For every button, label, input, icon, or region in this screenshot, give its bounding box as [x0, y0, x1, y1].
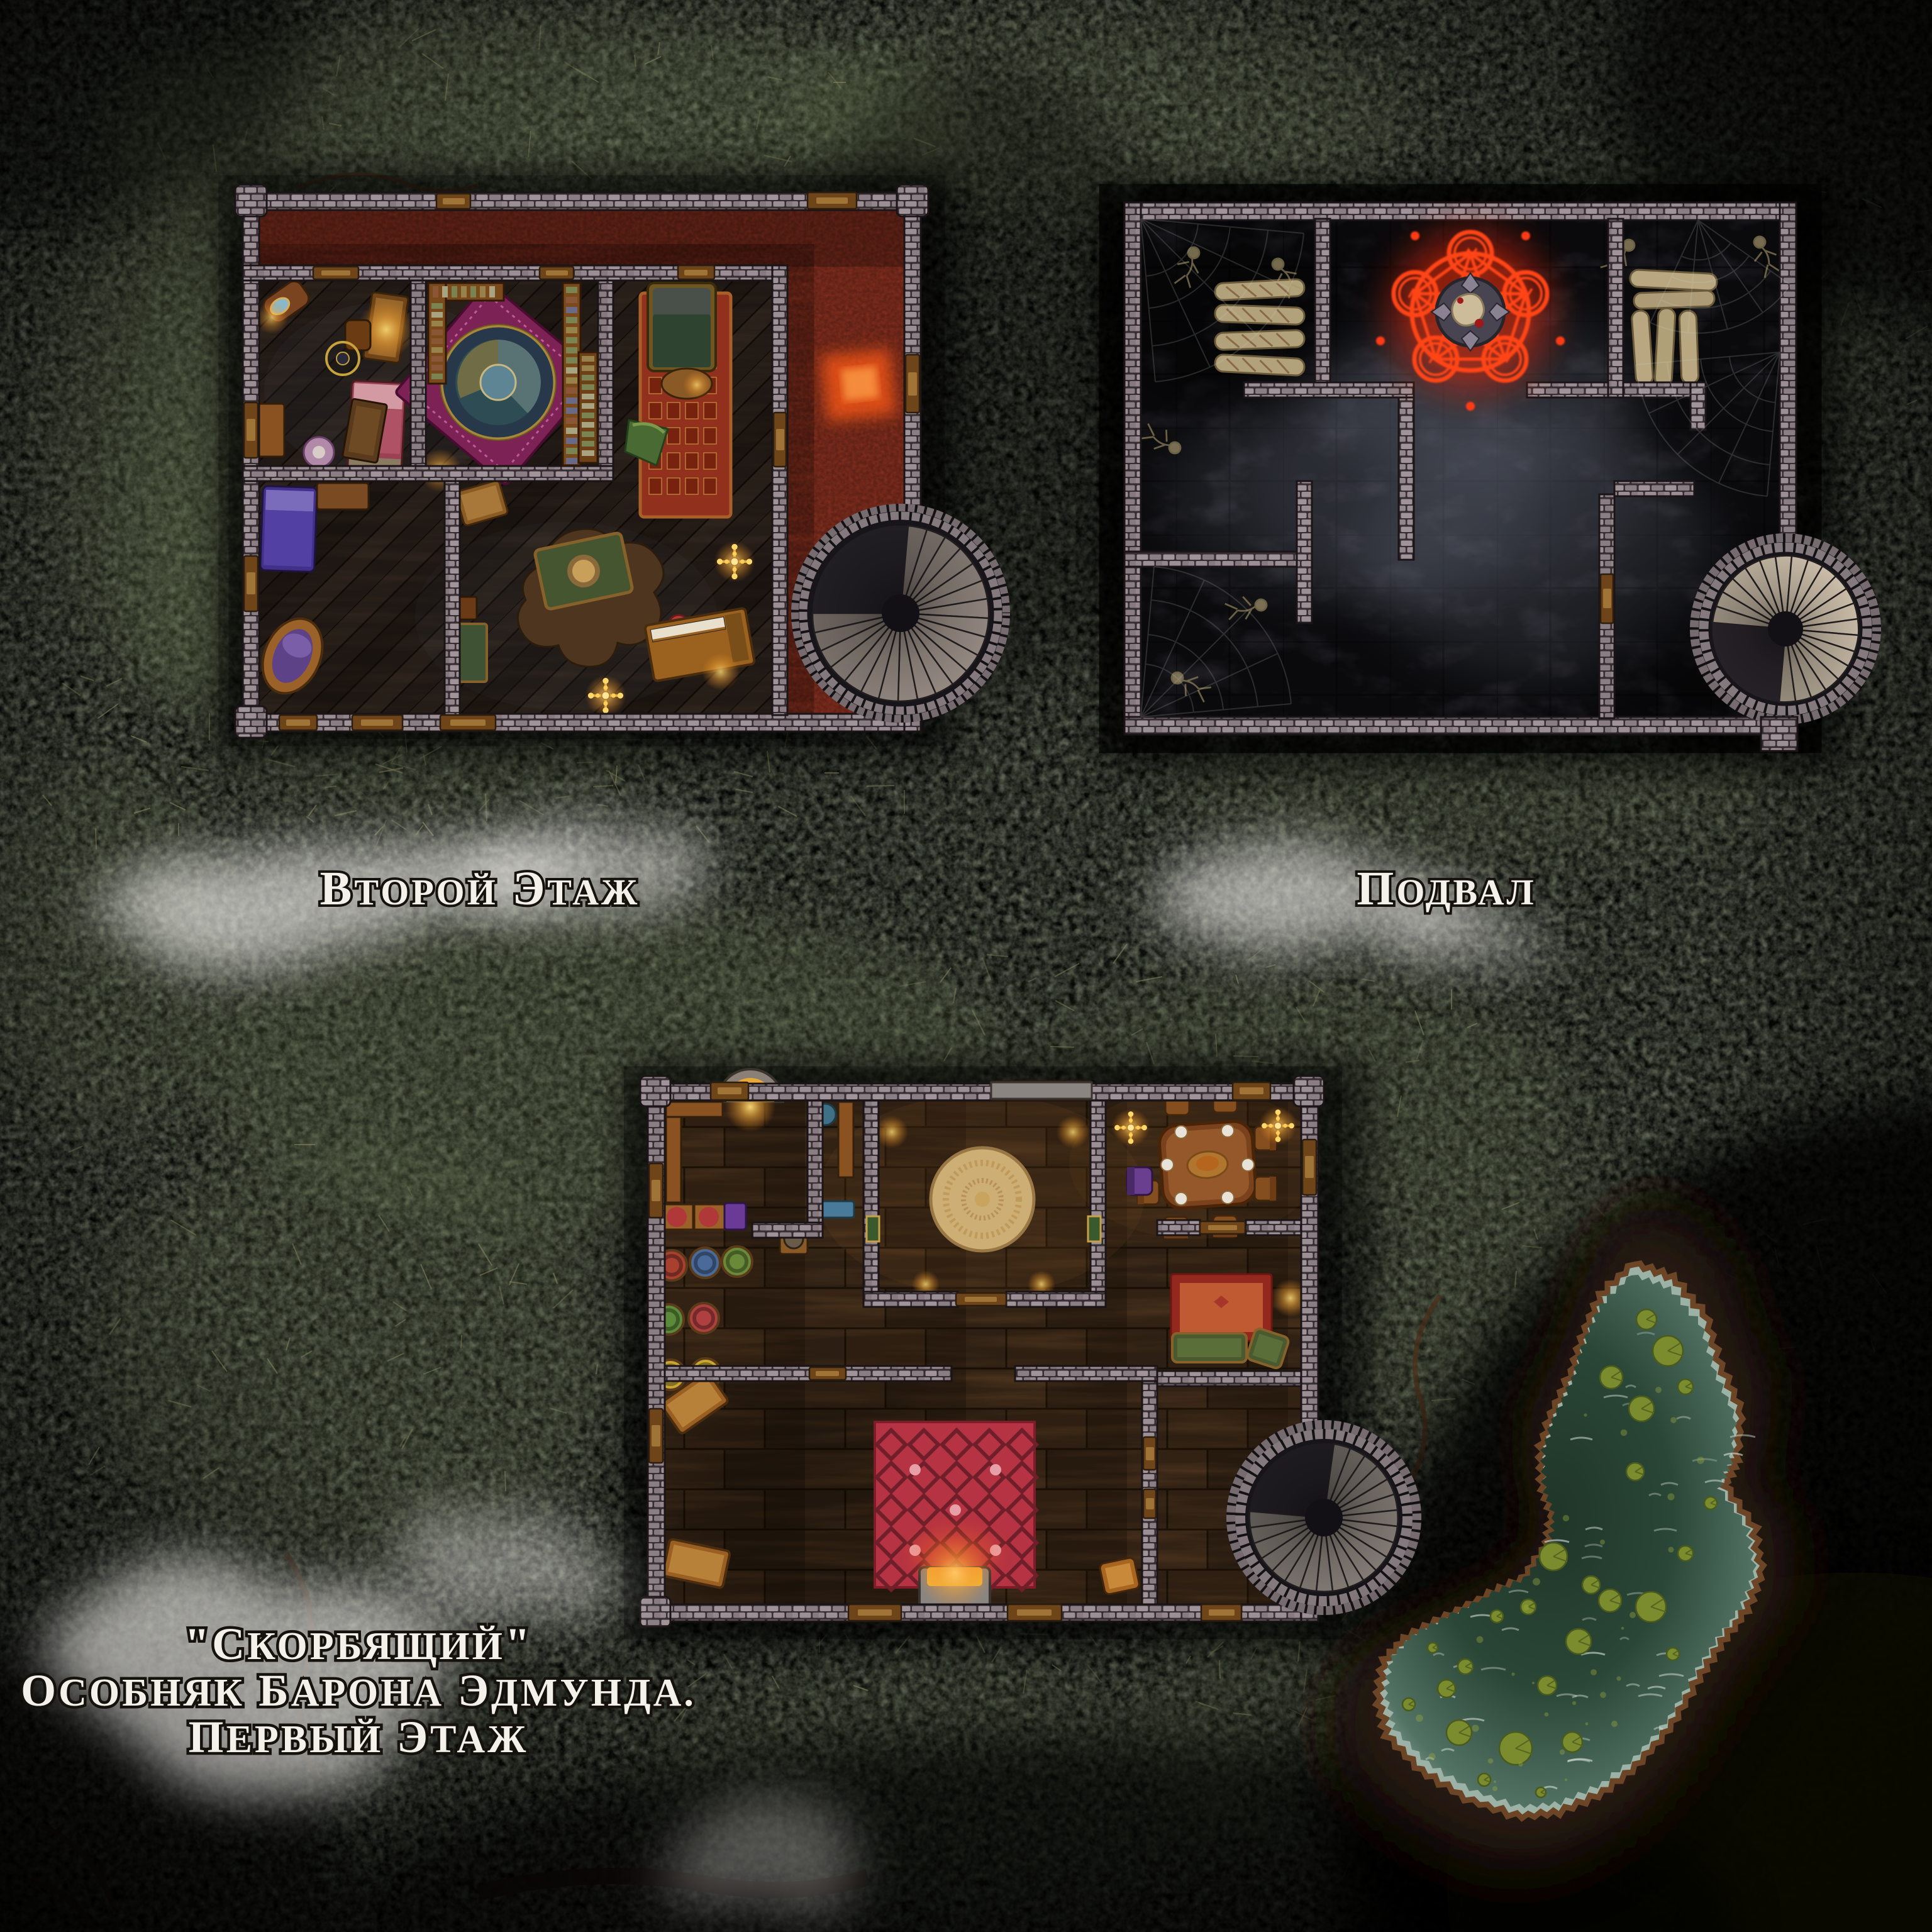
svg-text:"СКОРБЯЩИЙ": "СКОРБЯЩИЙ": [184, 1619, 533, 1669]
svg-text:ОСОБНЯК БАРОНА ЭДМУНДА.: ОСОБНЯК БАРОНА ЭДМУНДА.: [21, 1665, 696, 1716]
svg-text:ПЕРВЫЙ ЭТАЖ: ПЕРВЫЙ ЭТАЖ: [189, 1712, 529, 1762]
